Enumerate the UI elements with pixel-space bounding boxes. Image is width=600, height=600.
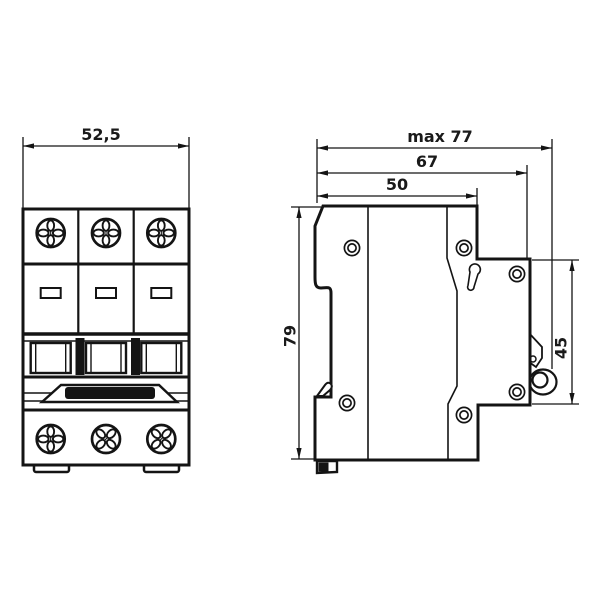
toggle-slot bbox=[31, 343, 182, 373]
rivet-icon bbox=[509, 384, 524, 399]
phillips-screw-icon bbox=[92, 219, 120, 247]
arrowhead bbox=[569, 393, 574, 404]
dim-label-50: 50 bbox=[386, 175, 408, 194]
rivet-icon bbox=[456, 407, 471, 422]
dim-label-45: 45 bbox=[552, 337, 571, 359]
dim-label-front-width: 52,5 bbox=[81, 125, 120, 144]
divider-bar bbox=[76, 338, 85, 375]
technical-drawing: 52,5 bbox=[0, 0, 600, 600]
arrowhead bbox=[178, 143, 189, 148]
rivet-icon bbox=[339, 395, 354, 410]
label-window bbox=[96, 288, 116, 298]
label-window bbox=[151, 288, 171, 298]
dim-label-67: 67 bbox=[416, 152, 438, 171]
front-view: 52,5 bbox=[23, 125, 189, 472]
dim-label-max-depth: max 77 bbox=[407, 127, 473, 146]
arrowhead bbox=[296, 207, 301, 218]
phillips-screw-icon bbox=[147, 219, 175, 247]
rivet-icon bbox=[344, 240, 359, 255]
arrowhead bbox=[296, 448, 301, 459]
rivet-icon bbox=[509, 266, 524, 281]
arrowhead bbox=[23, 143, 34, 148]
handle-tie-bar bbox=[65, 387, 155, 399]
arrowhead bbox=[569, 260, 574, 271]
divider-bar bbox=[131, 338, 140, 375]
din-rail-clip bbox=[317, 461, 337, 473]
phillips-screw-icon bbox=[37, 219, 65, 247]
dim-label-79: 79 bbox=[281, 325, 300, 347]
side-view: max 77 67 50 79 45 bbox=[281, 127, 580, 473]
drawing-canvas: 52,5 bbox=[0, 0, 600, 600]
rivet-icon bbox=[456, 240, 471, 255]
dimension-front-width bbox=[23, 137, 189, 208]
label-window bbox=[41, 288, 61, 298]
phillips-screw-icon bbox=[37, 425, 65, 453]
